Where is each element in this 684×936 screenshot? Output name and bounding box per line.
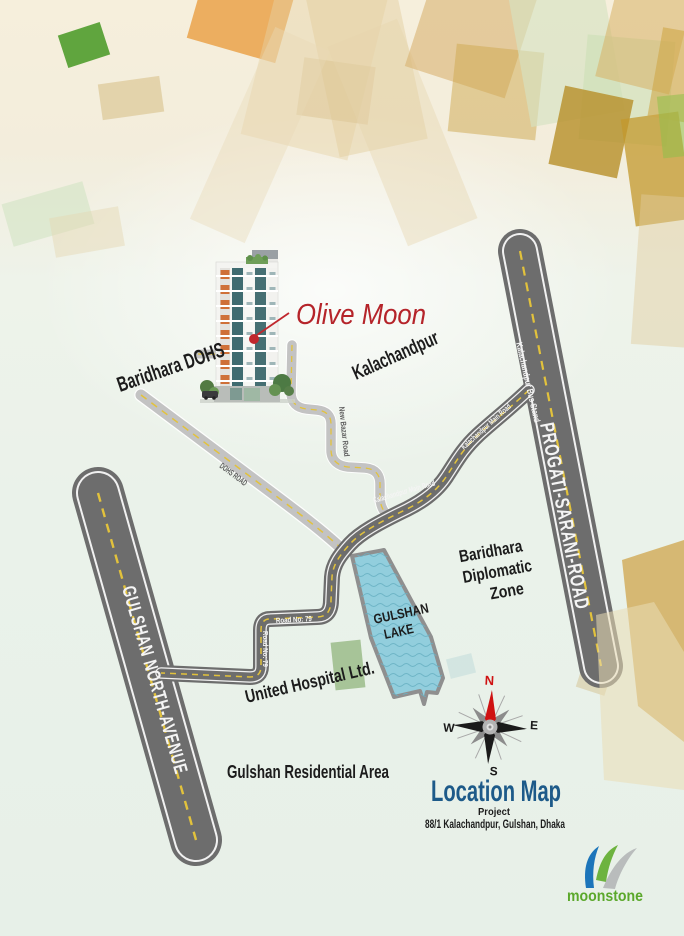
label-kalachandpur-main-road-upper: Kalachandpur Main Road [459, 402, 513, 452]
title-block: Location Map Project 88/1 Kalachandpur, … [425, 775, 565, 831]
label-baridhara-diplomatic-zone: Baridhara Diplomatic Zone [457, 535, 537, 607]
map-canvas: Olive Moon Baridhara DOHS Kalachandpur D… [0, 0, 684, 936]
label-kalachandpur: Kalachandpur [349, 327, 442, 385]
label-road-79-vertical: Road No: 79 [261, 631, 270, 667]
logo-mark-blue [585, 846, 599, 888]
compass-w-label: W [443, 721, 456, 736]
svg-text:Zone: Zone [488, 579, 525, 604]
title-address: 88/1 Kalachandpur, Gulshan, Dhaka [425, 819, 565, 831]
label-new-bazar-road: New Bazar Road [337, 406, 351, 457]
road-dohs [141, 395, 344, 551]
label-gulshan-residential-area: Gulshan Residential Area [227, 761, 390, 782]
building-illustration [200, 250, 295, 403]
brand-name: moonstone [567, 888, 643, 905]
location-map-poster: Olive Moon Baridhara DOHS Kalachandpur D… [0, 0, 684, 936]
title-subtitle: Project [478, 806, 510, 818]
compass-n-label: N [484, 673, 494, 688]
decor-shape [596, 602, 684, 790]
page-title: Location Map [431, 775, 561, 808]
project-name-label: Olive Moon [296, 299, 426, 331]
car-illustration [202, 391, 218, 398]
project-marker-dot [249, 334, 259, 344]
brand-logo: moonstone [567, 845, 643, 905]
compass-rose: N E W S [441, 671, 541, 781]
compass-e-label: E [530, 718, 539, 732]
label-road-79-horizontal: Road No: 79 [276, 614, 312, 625]
